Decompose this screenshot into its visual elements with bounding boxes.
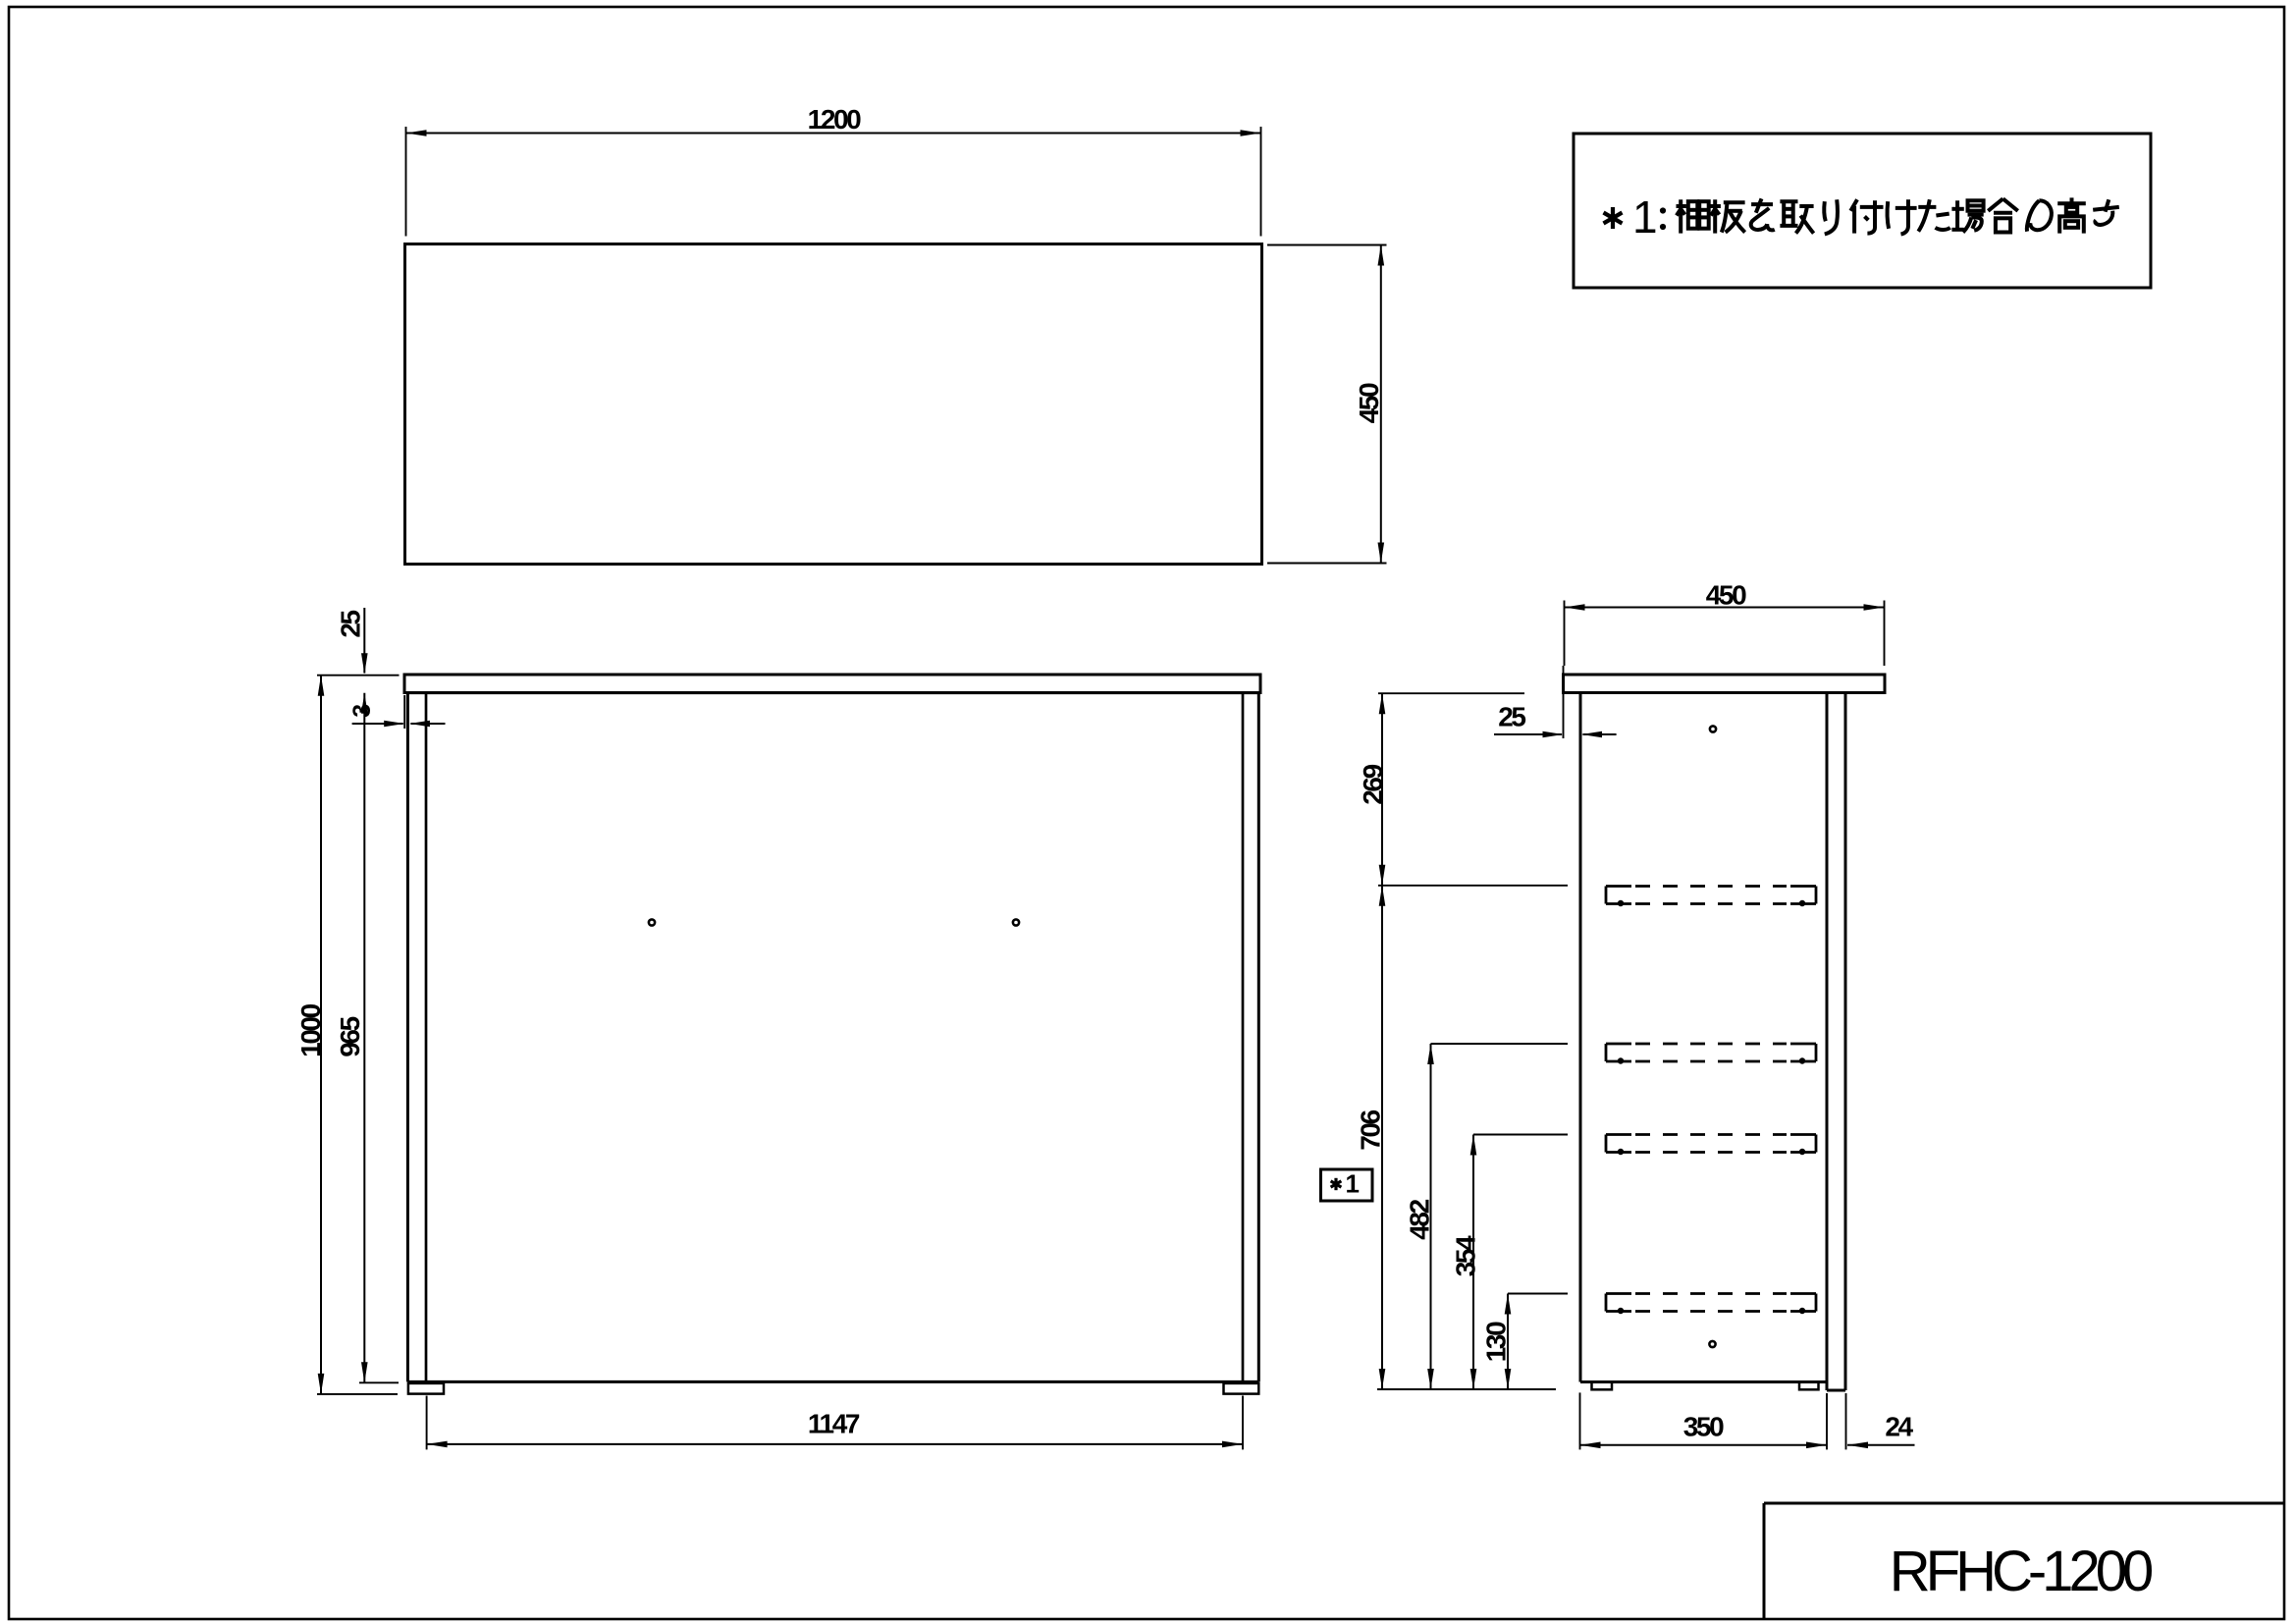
svg-text:1: 1 (1346, 1169, 1360, 1199)
svg-text:354: 354 (1451, 1235, 1481, 1276)
svg-text:269: 269 (1358, 764, 1388, 804)
svg-text:25: 25 (335, 611, 365, 638)
svg-text:1000: 1000 (295, 1003, 326, 1057)
svg-text:24: 24 (1885, 1411, 1913, 1441)
svg-text:3: 3 (348, 705, 376, 718)
svg-text:1200: 1200 (808, 104, 862, 135)
svg-text:25: 25 (1498, 702, 1525, 732)
svg-text:1147: 1147 (808, 1408, 860, 1438)
svg-text:RFHC-1200: RFHC-1200 (1890, 1540, 2152, 1603)
svg-text:350: 350 (1683, 1411, 1724, 1441)
svg-text:130: 130 (1481, 1322, 1512, 1362)
svg-text:706: 706 (1356, 1109, 1386, 1150)
svg-text:1: 1 (1632, 191, 1658, 243)
svg-text:450: 450 (1706, 580, 1746, 611)
svg-text:482: 482 (1405, 1199, 1435, 1239)
svg-text:450: 450 (1354, 383, 1384, 423)
svg-text:965: 965 (335, 1016, 365, 1056)
